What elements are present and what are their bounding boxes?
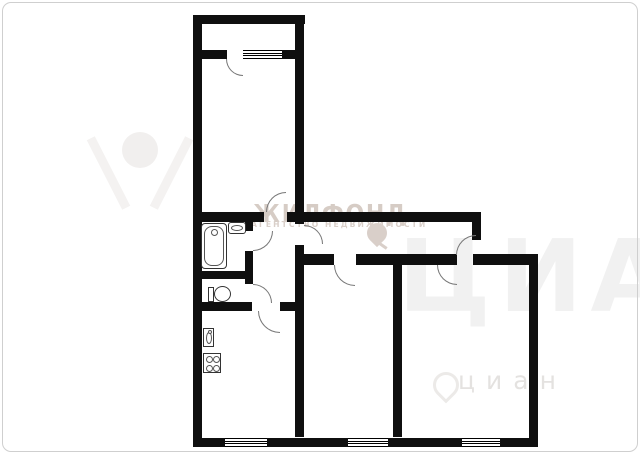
- wall-bottom-seg1: [193, 438, 225, 447]
- wall-bathroom-right-seg1: [245, 222, 253, 231]
- toilet-bowl: [214, 286, 231, 302]
- floorplan-image: ЦИАН ЖИЛФОНД АГЕНТСТВО НЕДВИЖИМОСТИ циан: [0, 0, 640, 454]
- door-arc-kitchen: [258, 311, 280, 333]
- wall-exterior-right: [529, 254, 538, 447]
- faint-pin-logo-icon: [122, 132, 158, 168]
- wall-exterior-top: [193, 15, 305, 24]
- wall-hall-top-seg1: [193, 212, 264, 222]
- window-room2: [348, 438, 388, 447]
- wall-bottom-seg2: [267, 438, 348, 447]
- wall-hall-bottom-seg1: [295, 254, 334, 265]
- window-balcony: [243, 50, 282, 59]
- door-arc-toilet: [253, 284, 272, 303]
- wall-room2-room3-divider: [393, 265, 402, 437]
- wall-hall-bottom-seg2: [356, 254, 457, 265]
- watermark-cian-small: циан: [458, 366, 567, 395]
- wall-balcony-seg2: [282, 50, 295, 59]
- wall-bath-toilet-divider: [202, 271, 245, 279]
- wall-bottom-seg4: [500, 438, 538, 447]
- door-arc-balcony: [226, 59, 243, 76]
- wall-bathroom-right-seg2: [245, 251, 253, 284]
- wall-balcony-seg1: [202, 50, 227, 59]
- wall-room1-right-upper: [295, 15, 304, 224]
- window-kitchen: [225, 438, 267, 447]
- bathroom-sink: [228, 222, 246, 234]
- wall-kitchen-top-seg1: [193, 302, 252, 311]
- wall-kitchen-top-seg2: [280, 302, 304, 311]
- door-arc-room1: [266, 192, 286, 212]
- watermark-cian-giant: ЦИАН: [398, 218, 640, 335]
- window-room3: [462, 438, 500, 447]
- door-arc-bathroom: [253, 231, 273, 251]
- wall-corridor-right-lower: [295, 245, 304, 437]
- wall-bottom-seg3: [388, 438, 462, 447]
- wall-hall-bottom-seg3: [473, 254, 538, 265]
- bathtub: [201, 223, 227, 269]
- kitchen-sink: [203, 328, 214, 347]
- kitchen-stove: [203, 353, 221, 373]
- wall-hall-top-seg2: [287, 212, 481, 222]
- door-arc-room2: [334, 265, 355, 286]
